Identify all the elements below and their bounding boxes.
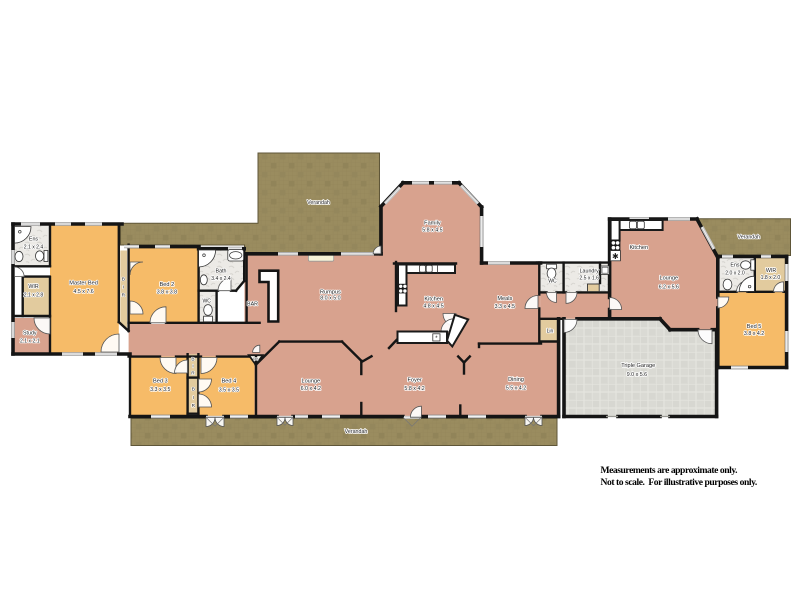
svg-text:I: I	[192, 363, 193, 368]
svg-text:2.1 x 2.8: 2.1 x 2.8	[24, 293, 44, 299]
svg-text:R: R	[122, 293, 126, 299]
svg-text:Kitchen: Kitchen	[424, 296, 443, 302]
svg-text:9.0 x 5.6: 9.0 x 5.6	[627, 372, 647, 378]
svg-text:3.3 x 4.5: 3.3 x 4.5	[495, 304, 515, 310]
svg-text:Foyer: Foyer	[407, 378, 421, 384]
svg-text:WC: WC	[548, 278, 557, 284]
svg-text:4.5 x 7.6: 4.5 x 7.6	[73, 289, 93, 295]
svg-text:Triple Garage: Triple Garage	[621, 363, 655, 369]
svg-text:I: I	[193, 395, 194, 400]
svg-text:B: B	[191, 356, 194, 361]
svg-text:1.8 x 2.0: 1.8 x 2.0	[761, 275, 781, 281]
svg-text:WC: WC	[202, 299, 211, 305]
svg-text:Kitchen: Kitchen	[629, 245, 648, 251]
svg-text:Laundry: Laundry	[580, 268, 599, 274]
svg-text:Bed 5: Bed 5	[747, 324, 762, 330]
svg-text:3.8 x 4.2: 3.8 x 4.2	[744, 331, 764, 337]
svg-text:I: I	[123, 285, 124, 291]
svg-text:Verandah: Verandah	[345, 429, 368, 435]
svg-text:Bed 2: Bed 2	[160, 282, 175, 288]
svg-text:3.3 x 3.5: 3.3 x 3.5	[150, 387, 170, 393]
svg-text:6.0 x 4.2: 6.0 x 4.2	[301, 386, 321, 392]
svg-text:Bath: Bath	[216, 269, 227, 275]
svg-text:BAR: BAR	[247, 302, 258, 308]
svg-text:WIR: WIR	[28, 284, 38, 290]
svg-text:Lin: Lin	[253, 357, 258, 361]
svg-text:6.2 x 5.6: 6.2 x 5.6	[659, 284, 679, 290]
svg-text:5.8 x 4.5: 5.8 x 4.5	[422, 228, 442, 234]
svg-text:3.4 x 2.4: 3.4 x 2.4	[211, 276, 231, 282]
svg-text:✱: ✱	[612, 252, 619, 261]
svg-text:Verandah: Verandah	[737, 234, 760, 240]
svg-text:Ens: Ens	[29, 237, 38, 243]
svg-text:8.0 x 5.0: 8.0 x 5.0	[320, 296, 340, 302]
svg-text:Lounge: Lounge	[659, 276, 678, 282]
svg-text:WIR: WIR	[766, 268, 776, 274]
svg-text:B: B	[192, 387, 195, 392]
svg-text:Measurements are approximate o: Measurements are approximate only.	[601, 465, 738, 476]
svg-text:Family: Family	[424, 220, 441, 226]
svg-text:3.5 x 3.5: 3.5 x 3.5	[219, 388, 239, 394]
svg-text:Lounge: Lounge	[301, 378, 320, 384]
svg-text:Bed 4: Bed 4	[222, 379, 237, 385]
svg-text:Bed 3: Bed 3	[153, 379, 168, 385]
svg-text:2.1 x 2.1: 2.1 x 2.1	[20, 338, 40, 344]
svg-text:Study: Study	[23, 331, 37, 337]
svg-text:Verandah: Verandah	[307, 200, 330, 206]
svg-text:3.8 x 3.8: 3.8 x 3.8	[157, 290, 177, 296]
svg-text:2.1 x 2.4: 2.1 x 2.4	[24, 245, 44, 251]
svg-text:5.8 x 4.2: 5.8 x 4.2	[404, 386, 424, 392]
svg-text:4.8 x 4.5: 4.8 x 4.5	[423, 304, 443, 310]
svg-text:Ens: Ens	[730, 263, 739, 269]
svg-text:Not to scale. For illustrativ: Not to scale. For illustrative purposes …	[601, 477, 757, 488]
svg-text:2.5 x 1.6: 2.5 x 1.6	[579, 276, 599, 282]
svg-text:Meals: Meals	[497, 296, 512, 302]
svg-text:Rumpus: Rumpus	[320, 289, 341, 295]
svg-text:2.0 x 2.0: 2.0 x 2.0	[725, 271, 745, 277]
svg-text:B: B	[122, 277, 125, 283]
svg-text:5.5 x 4.2: 5.5 x 4.2	[506, 385, 526, 391]
svg-text:Lin: Lin	[547, 329, 554, 335]
svg-text:Master Bed: Master Bed	[69, 280, 98, 286]
svg-text:Dining: Dining	[508, 377, 524, 383]
